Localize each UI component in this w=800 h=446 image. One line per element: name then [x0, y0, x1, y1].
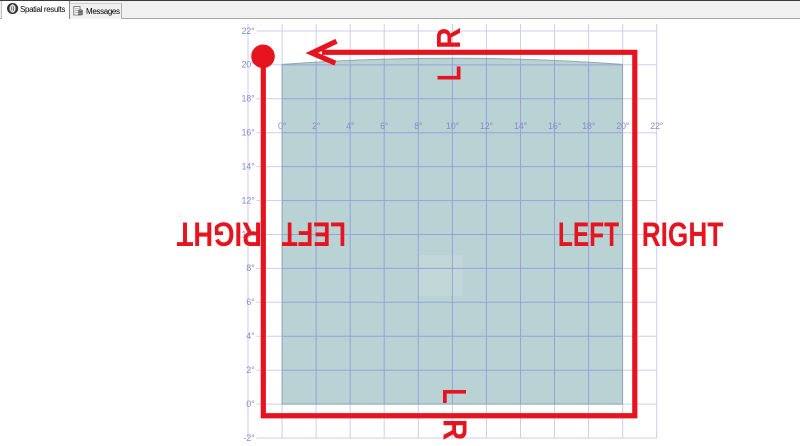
svg-text:14°: 14°	[514, 121, 528, 131]
svg-text:R: R	[437, 419, 474, 440]
svg-text:2°: 2°	[312, 121, 321, 131]
svg-text:12°: 12°	[480, 121, 494, 131]
svg-text:12°: 12°	[241, 195, 255, 205]
svg-text:L: L	[436, 388, 473, 404]
svg-text:L: L	[430, 66, 467, 82]
svg-text:16°: 16°	[548, 121, 562, 131]
svg-text:20°: 20°	[616, 121, 630, 131]
svg-text:6°: 6°	[380, 121, 389, 131]
svg-text:22°: 22°	[241, 26, 255, 36]
svg-text:16°: 16°	[241, 128, 255, 138]
svg-text:8°: 8°	[246, 263, 255, 273]
svg-text:LEFT: LEFT	[558, 216, 619, 254]
svg-text:LEFT: LEFT	[282, 215, 346, 253]
svg-text:8°: 8°	[414, 121, 423, 131]
svg-text:6°: 6°	[246, 297, 255, 307]
svg-text:22°: 22°	[650, 121, 664, 131]
svg-text:4°: 4°	[346, 121, 355, 131]
svg-text:RIGHT: RIGHT	[176, 215, 261, 253]
svg-text:-2°: -2°	[243, 433, 255, 443]
svg-text:RIGHT: RIGHT	[642, 216, 724, 254]
svg-text:4°: 4°	[246, 331, 255, 341]
svg-text:14°: 14°	[241, 161, 255, 171]
svg-text:0°: 0°	[278, 121, 287, 131]
svg-text:18°: 18°	[582, 121, 596, 131]
svg-text:10°: 10°	[446, 121, 460, 131]
svg-text:0°: 0°	[246, 399, 255, 409]
svg-text:18°: 18°	[241, 94, 255, 104]
svg-text:R: R	[430, 27, 467, 48]
svg-text:2°: 2°	[246, 365, 255, 375]
